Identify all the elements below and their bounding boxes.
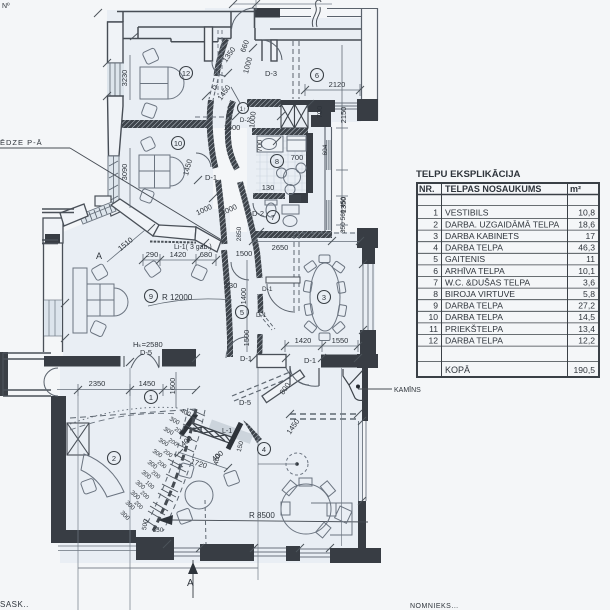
svg-text:6: 6 [315,71,319,80]
svg-text:ĒDZE P-Ā: ĒDZE P-Ā [0,138,43,147]
svg-text:2850: 2850 [236,226,243,241]
svg-text:TELPU EKSPLIKĀCIJA: TELPU EKSPLIKĀCIJA [416,169,521,180]
svg-text:7: 7 [433,277,438,287]
svg-text:DARBA KABINETS: DARBA KABINETS [445,231,519,241]
svg-text:9: 9 [149,292,153,301]
svg-text:290: 290 [146,250,159,259]
svg-text:GAITENIS: GAITENIS [445,254,485,264]
svg-text:350 560 450: 350 560 450 [340,197,347,234]
svg-text:11: 11 [586,254,595,264]
svg-text:4: 4 [262,445,266,454]
svg-text:10,1: 10,1 [578,266,595,276]
svg-text:2650: 2650 [272,243,289,252]
svg-text:5,8: 5,8 [583,289,595,299]
svg-text:NOMNIEKS…: NOMNIEKS… [410,603,459,610]
svg-text:1: 1 [433,208,438,218]
svg-text:3,6: 3,6 [583,277,595,287]
svg-text:SASK..: SASK.. [0,600,29,609]
svg-text:4: 4 [433,243,438,253]
svg-text:W.C. &DUŠAS TELPA: W.C. &DUŠAS TELPA [445,277,530,287]
svg-text:12: 12 [428,335,438,345]
svg-text:11: 11 [429,324,438,334]
svg-text:130: 130 [225,281,238,290]
svg-text:130: 130 [262,183,275,192]
svg-text:1420: 1420 [295,336,312,345]
svg-text:NR.: NR. [419,184,435,194]
svg-text:KOPĀ: KOPĀ [445,365,470,375]
svg-text:2120: 2120 [329,80,346,89]
svg-text:46,3: 46,3 [578,243,595,253]
svg-text:17: 17 [585,231,595,241]
svg-text:1500: 1500 [242,330,251,347]
svg-text:700: 700 [255,140,264,153]
svg-text:D-1: D-1 [240,354,252,363]
svg-text:A: A [187,578,194,589]
svg-text:1550: 1550 [332,336,349,345]
svg-text:DARBA. UZGAIDĀMĀ TELPA: DARBA. UZGAIDĀMĀ TELPA [445,220,560,230]
svg-text:DARBA TELPA: DARBA TELPA [445,312,503,322]
svg-text:1: 1 [149,393,153,402]
svg-text:D-5: D-5 [239,398,251,407]
svg-text:2150: 2150 [339,107,348,124]
svg-text:14,5: 14,5 [578,312,595,322]
svg-text:m²: m² [570,184,581,194]
svg-text:VESTIBILS: VESTIBILS [445,208,489,218]
svg-text:1420: 1420 [170,250,187,259]
svg-text:3230: 3230 [120,70,129,87]
svg-text:9: 9 [433,301,438,311]
svg-text:10: 10 [174,139,182,148]
svg-text:7: 7 [271,213,275,222]
svg-text:13,4: 13,4 [578,324,595,334]
svg-text:1↑: 1↑ [240,106,247,113]
svg-text:1450: 1450 [139,379,156,388]
svg-text:D-5: D-5 [140,348,152,357]
svg-text:DARBA TELPA: DARBA TELPA [445,335,503,345]
svg-text:680: 680 [200,250,213,259]
svg-text:TELPAS NOSAUKUMS: TELPAS NOSAUKUMS [445,184,541,194]
svg-text:PRIEKŠTELPA: PRIEKŠTELPA [445,324,503,334]
svg-text:D-2: D-2 [252,209,264,218]
svg-text:6: 6 [433,266,438,276]
svg-text:12,2: 12,2 [578,335,595,345]
svg-text:BIROJA VIRTUVE: BIROJA VIRTUVE [445,289,515,299]
svg-text:8: 8 [433,289,438,299]
svg-text:1400: 1400 [239,288,248,305]
svg-text:D-1: D-1 [304,356,316,365]
svg-text:10: 10 [428,312,438,322]
svg-text:DARBA TELPA: DARBA TELPA [445,243,503,253]
svg-text:Nº: Nº [2,3,10,10]
svg-text:DARBA TELPA: DARBA TELPA [445,301,503,311]
svg-text:2: 2 [112,454,116,463]
svg-text:3: 3 [322,293,326,302]
svg-text:350: 350 [153,527,164,534]
svg-text:D-2: D-2 [240,117,251,124]
svg-text:D-1: D-1 [262,286,273,293]
svg-text:12: 12 [182,69,190,78]
svg-text:R 8500: R 8500 [249,511,275,520]
svg-text:8: 8 [275,157,279,166]
svg-text:3090: 3090 [120,164,129,181]
svg-text:D-3: D-3 [265,69,277,78]
svg-text:R 12000: R 12000 [162,293,193,302]
svg-text:3: 3 [433,231,438,241]
svg-text:2350: 2350 [89,379,106,388]
svg-text:1500: 1500 [224,123,241,132]
svg-text:L-1: L-1 [193,427,203,434]
svg-text:1600: 1600 [168,378,177,395]
svg-text:5: 5 [240,308,244,317]
svg-text:2: 2 [433,220,438,230]
svg-text:D-1: D-1 [256,312,267,319]
svg-text:5: 5 [433,254,438,264]
svg-text:700: 700 [291,153,304,162]
svg-text:ARHĪVA TELPA: ARHĪVA TELPA [445,266,505,276]
svg-text:L-1: L-1 [222,428,232,435]
svg-text:A: A [96,251,102,261]
svg-text:700: 700 [315,106,324,119]
svg-text:190,5: 190,5 [573,365,595,375]
svg-text:1500: 1500 [236,249,253,258]
svg-text:KAMĪNS: KAMĪNS [394,386,421,394]
svg-text:604: 604 [322,144,329,155]
svg-text:10,8: 10,8 [578,208,595,218]
svg-text:18,6: 18,6 [578,220,595,230]
svg-text:D-1: D-1 [205,173,217,182]
svg-text:27,2: 27,2 [578,301,595,311]
